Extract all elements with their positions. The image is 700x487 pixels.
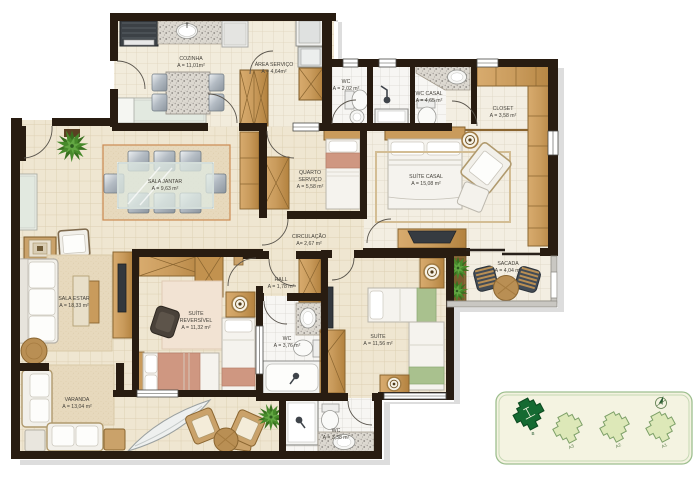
svg-text:A = 3,38 m²: A = 3,38 m² (323, 435, 350, 441)
svg-text:A = 3,76 m²: A = 3,76 m² (274, 343, 301, 349)
svg-text:HALL: HALL (275, 277, 288, 283)
svg-text:SALA JANTAR: SALA JANTAR (148, 179, 182, 185)
svg-text:A = 1,78 m²: A = 1,78 m² (268, 284, 295, 290)
svg-text:SERVIÇO: SERVIÇO (298, 177, 321, 183)
svg-text:WC CASAL: WC CASAL (415, 91, 442, 97)
svg-text:SUÍTE CASAL: SUÍTE CASAL (409, 173, 443, 180)
svg-text:A = 18,33 m²: A = 18,33 m² (59, 303, 89, 309)
svg-text:A= 2,67 m²: A= 2,67 m² (296, 241, 322, 247)
svg-text:COZINHA: COZINHA (179, 56, 203, 62)
svg-text:A = 13,04 m²: A = 13,04 m² (62, 404, 92, 410)
svg-text:A = 11,56 m²: A = 11,56 m² (363, 341, 392, 347)
svg-text:REVERSÍVEL: REVERSÍVEL (180, 317, 213, 324)
svg-text:ÁREA SERVIÇO: ÁREA SERVIÇO (255, 61, 294, 68)
svg-text:CIRCULAÇÃO: CIRCULAÇÃO (292, 233, 326, 240)
svg-text:A = 4,65 m²: A = 4,65 m² (416, 98, 443, 104)
svg-text:WC: WC (332, 428, 341, 434)
svg-text:QUARTO: QUARTO (299, 170, 321, 176)
svg-text:A = 4,04 m²: A = 4,04 m² (495, 268, 522, 274)
svg-text:A = 9,63 m²: A = 9,63 m² (152, 186, 179, 192)
svg-text:A = 2,02 m²: A = 2,02 m² (333, 86, 360, 92)
svg-text:SALA ESTAR: SALA ESTAR (58, 296, 90, 302)
svg-text:SUÍTE: SUÍTE (188, 310, 204, 317)
svg-text:VARANDA: VARANDA (65, 397, 90, 403)
svg-text:WC: WC (342, 79, 351, 85)
svg-text:A = 11,01m²: A = 11,01m² (177, 63, 205, 69)
svg-text:A = 11,32 m²: A = 11,32 m² (181, 325, 210, 331)
svg-text:A = 5,58 m²: A = 5,58 m² (297, 184, 324, 190)
svg-text:A = 4,64m²: A = 4,64m² (261, 69, 287, 75)
svg-text:CLOSET: CLOSET (493, 106, 515, 112)
svg-text:A = 15,08 m²: A = 15,08 m² (411, 181, 441, 187)
svg-text:SUÍTE: SUÍTE (370, 333, 386, 340)
svg-text:SACADA: SACADA (497, 261, 519, 267)
svg-text:A = 3,58 m²: A = 3,58 m² (490, 113, 517, 119)
svg-text:WC: WC (283, 336, 292, 342)
svg-text:B: B (531, 431, 534, 436)
